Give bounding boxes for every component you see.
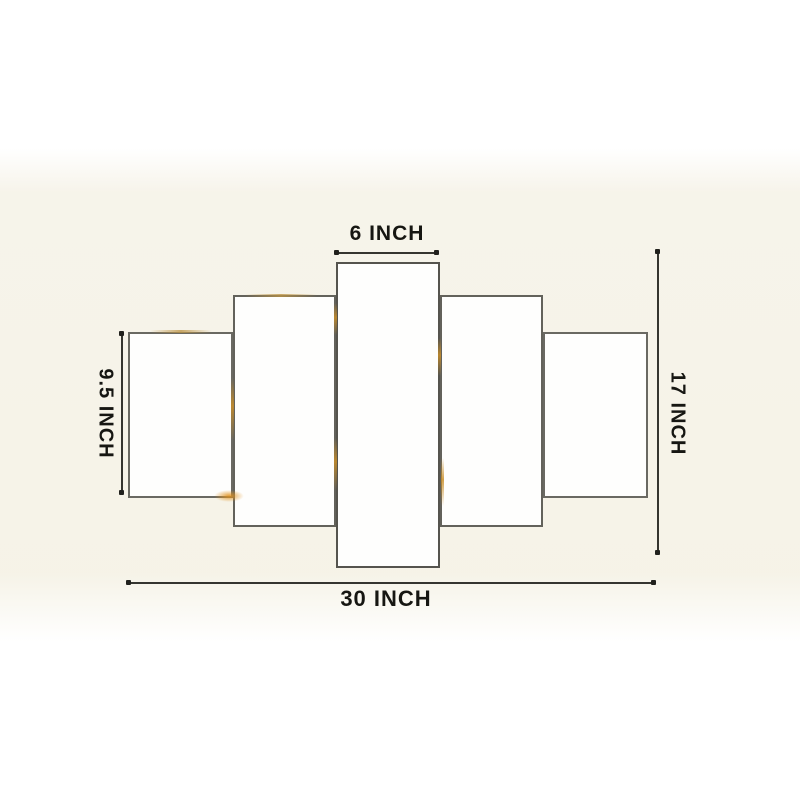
canvas-edge-glint (441, 458, 444, 506)
dimension-label-right-height: 17 INCH (666, 334, 689, 494)
dimension-line-top (337, 252, 437, 254)
dimension-endpoint (655, 249, 660, 254)
dimension-endpoint (119, 490, 124, 495)
canvas-edge-glint (214, 490, 244, 502)
dimension-line-right (657, 251, 659, 554)
canvas-edge-glint (245, 294, 317, 297)
dimension-label-bottom-width: 30 INCH (286, 586, 486, 612)
dimension-endpoint (126, 580, 131, 585)
canvas-panel-5 (543, 332, 648, 498)
canvas-panel-2 (233, 295, 336, 527)
product-size-diagram: 6 INCH 9.5 INCH 17 INCH 30 INCH (0, 0, 800, 800)
canvas-edge-glint (150, 330, 212, 333)
dimension-line-left (121, 333, 123, 494)
dimension-endpoint (119, 331, 124, 336)
canvas-panel-3 (336, 262, 440, 568)
dimension-label-top-width: 6 INCH (287, 222, 487, 246)
canvas-edge-glint (231, 378, 234, 440)
dimension-endpoint (655, 550, 660, 555)
canvas-edge-glint (334, 303, 337, 335)
canvas-edge-glint (334, 438, 337, 490)
dimension-line-bottom (128, 582, 655, 584)
canvas-panel-4 (440, 295, 543, 527)
canvas-edge-glint (438, 338, 441, 376)
dimension-endpoint (334, 250, 339, 255)
canvas-panel-1 (128, 332, 233, 498)
dimension-label-left-height: 9.5 INCH (94, 334, 117, 494)
dimension-endpoint (651, 580, 656, 585)
dimension-endpoint (434, 250, 439, 255)
